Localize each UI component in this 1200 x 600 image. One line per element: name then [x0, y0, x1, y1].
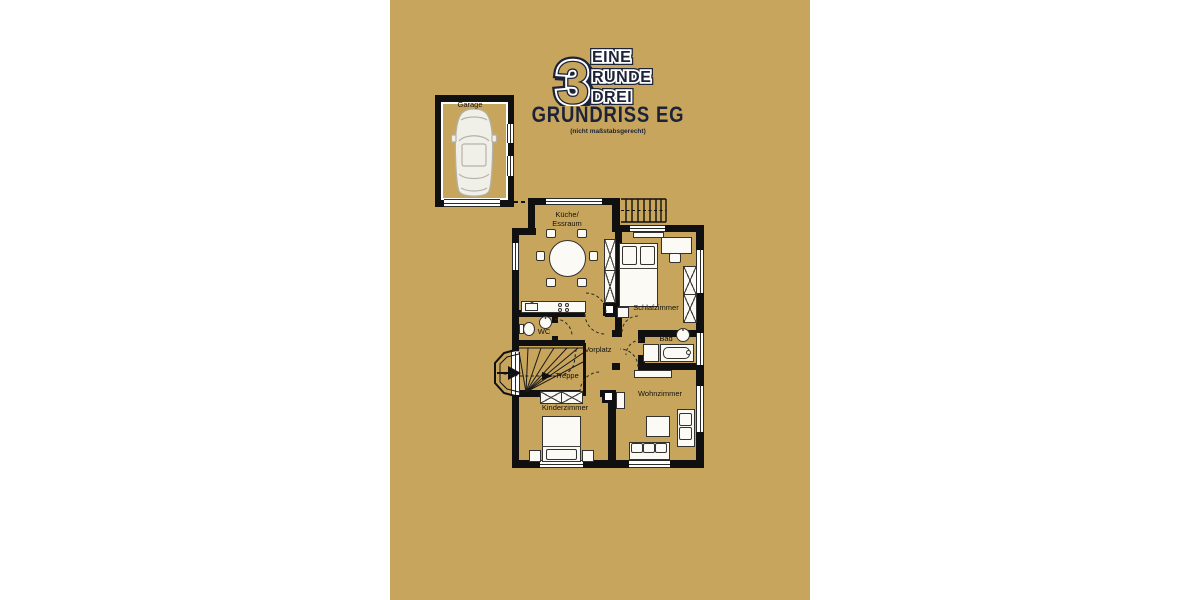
room-label-garage: Garage	[446, 100, 494, 109]
washbasin	[676, 328, 690, 342]
pillow	[622, 246, 637, 265]
room-label-living: Wohnzimmer	[634, 389, 686, 398]
stove-burner	[558, 303, 562, 307]
floorplan-poster: 3 3 3 3 EINE RUNDE DREI EINE RUNDE DREI …	[0, 0, 1200, 600]
garage-inner-lining	[441, 102, 508, 200]
wall	[512, 395, 519, 468]
room-label-bath: Bad	[654, 334, 678, 343]
pantry-cabinet	[604, 270, 616, 303]
armchair-cushion	[679, 427, 692, 440]
window	[507, 156, 514, 176]
window	[696, 386, 704, 432]
sideboard	[634, 370, 672, 378]
room-label-wc: WC	[533, 327, 555, 336]
svg-text:RUNDE: RUNDE	[592, 69, 651, 86]
svg-text:3: 3	[557, 51, 589, 106]
wardrobe	[683, 294, 697, 323]
room-label-kitchen: Küche/ Essraum	[542, 210, 592, 228]
kitchen-sink	[525, 303, 538, 311]
nightstand	[582, 450, 594, 462]
chair	[589, 251, 598, 261]
stove-burner	[565, 303, 569, 307]
wall	[499, 199, 514, 207]
coffee-table	[646, 416, 670, 437]
wall	[638, 337, 645, 343]
window	[696, 333, 704, 365]
room-label-kids: Kinderzimmer	[537, 403, 593, 412]
pillow	[640, 246, 655, 265]
room-label-bedroom: Schlafzimmer	[627, 303, 685, 312]
bed-divider	[619, 268, 658, 269]
chair	[546, 229, 556, 238]
window	[696, 250, 704, 293]
window	[512, 243, 519, 270]
wall	[552, 317, 558, 323]
room-label-stairs: Treppe	[549, 371, 585, 380]
room-label-hall: Vorplatz	[579, 345, 617, 354]
entrance-threshold	[511, 352, 520, 395]
garage-door	[444, 199, 500, 207]
svg-text:EINE: EINE	[592, 49, 631, 66]
chair	[577, 278, 587, 287]
window	[629, 460, 670, 468]
wall	[612, 330, 622, 337]
wall	[512, 340, 585, 346]
chair	[536, 251, 545, 261]
sofa-cushion	[643, 443, 655, 453]
stove-burner	[558, 308, 562, 312]
wall	[507, 95, 514, 207]
chimney-flue	[605, 393, 612, 400]
pantry-cabinet	[604, 239, 616, 271]
desk	[661, 237, 692, 254]
wardrobe	[683, 266, 697, 295]
washing-machine	[643, 344, 659, 362]
desk-chair	[669, 253, 681, 263]
bed-divider	[542, 446, 581, 447]
chair	[546, 278, 556, 287]
nightstand	[529, 450, 541, 462]
window	[507, 124, 514, 143]
window	[630, 225, 665, 232]
bathtub-drain	[686, 350, 691, 355]
sofa-cushion	[631, 443, 643, 453]
wall	[640, 363, 704, 370]
radiator	[633, 232, 664, 238]
sofa-cushion	[655, 443, 667, 453]
stove-burner	[565, 308, 569, 312]
dining-table	[549, 240, 586, 277]
wall	[612, 198, 620, 230]
chimney-flue	[606, 306, 613, 313]
wall	[612, 363, 620, 370]
tv-board	[616, 392, 625, 409]
logo-digit: 3 3 3 3	[557, 51, 591, 106]
armchair-cushion	[679, 413, 692, 426]
window	[546, 198, 602, 205]
logo-wordmark: EINE RUNDE DREI EINE RUNDE DREI EINE RUN…	[592, 49, 651, 106]
page-subtitle: (nicht maßstabsgerecht)	[508, 128, 708, 135]
chair	[577, 229, 587, 238]
page-title: GRUNDRISS EG	[524, 103, 692, 127]
pillow	[546, 449, 577, 460]
brand-logo: 3 3 3 3 EINE RUNDE DREI EINE RUNDE DREI …	[540, 36, 670, 106]
